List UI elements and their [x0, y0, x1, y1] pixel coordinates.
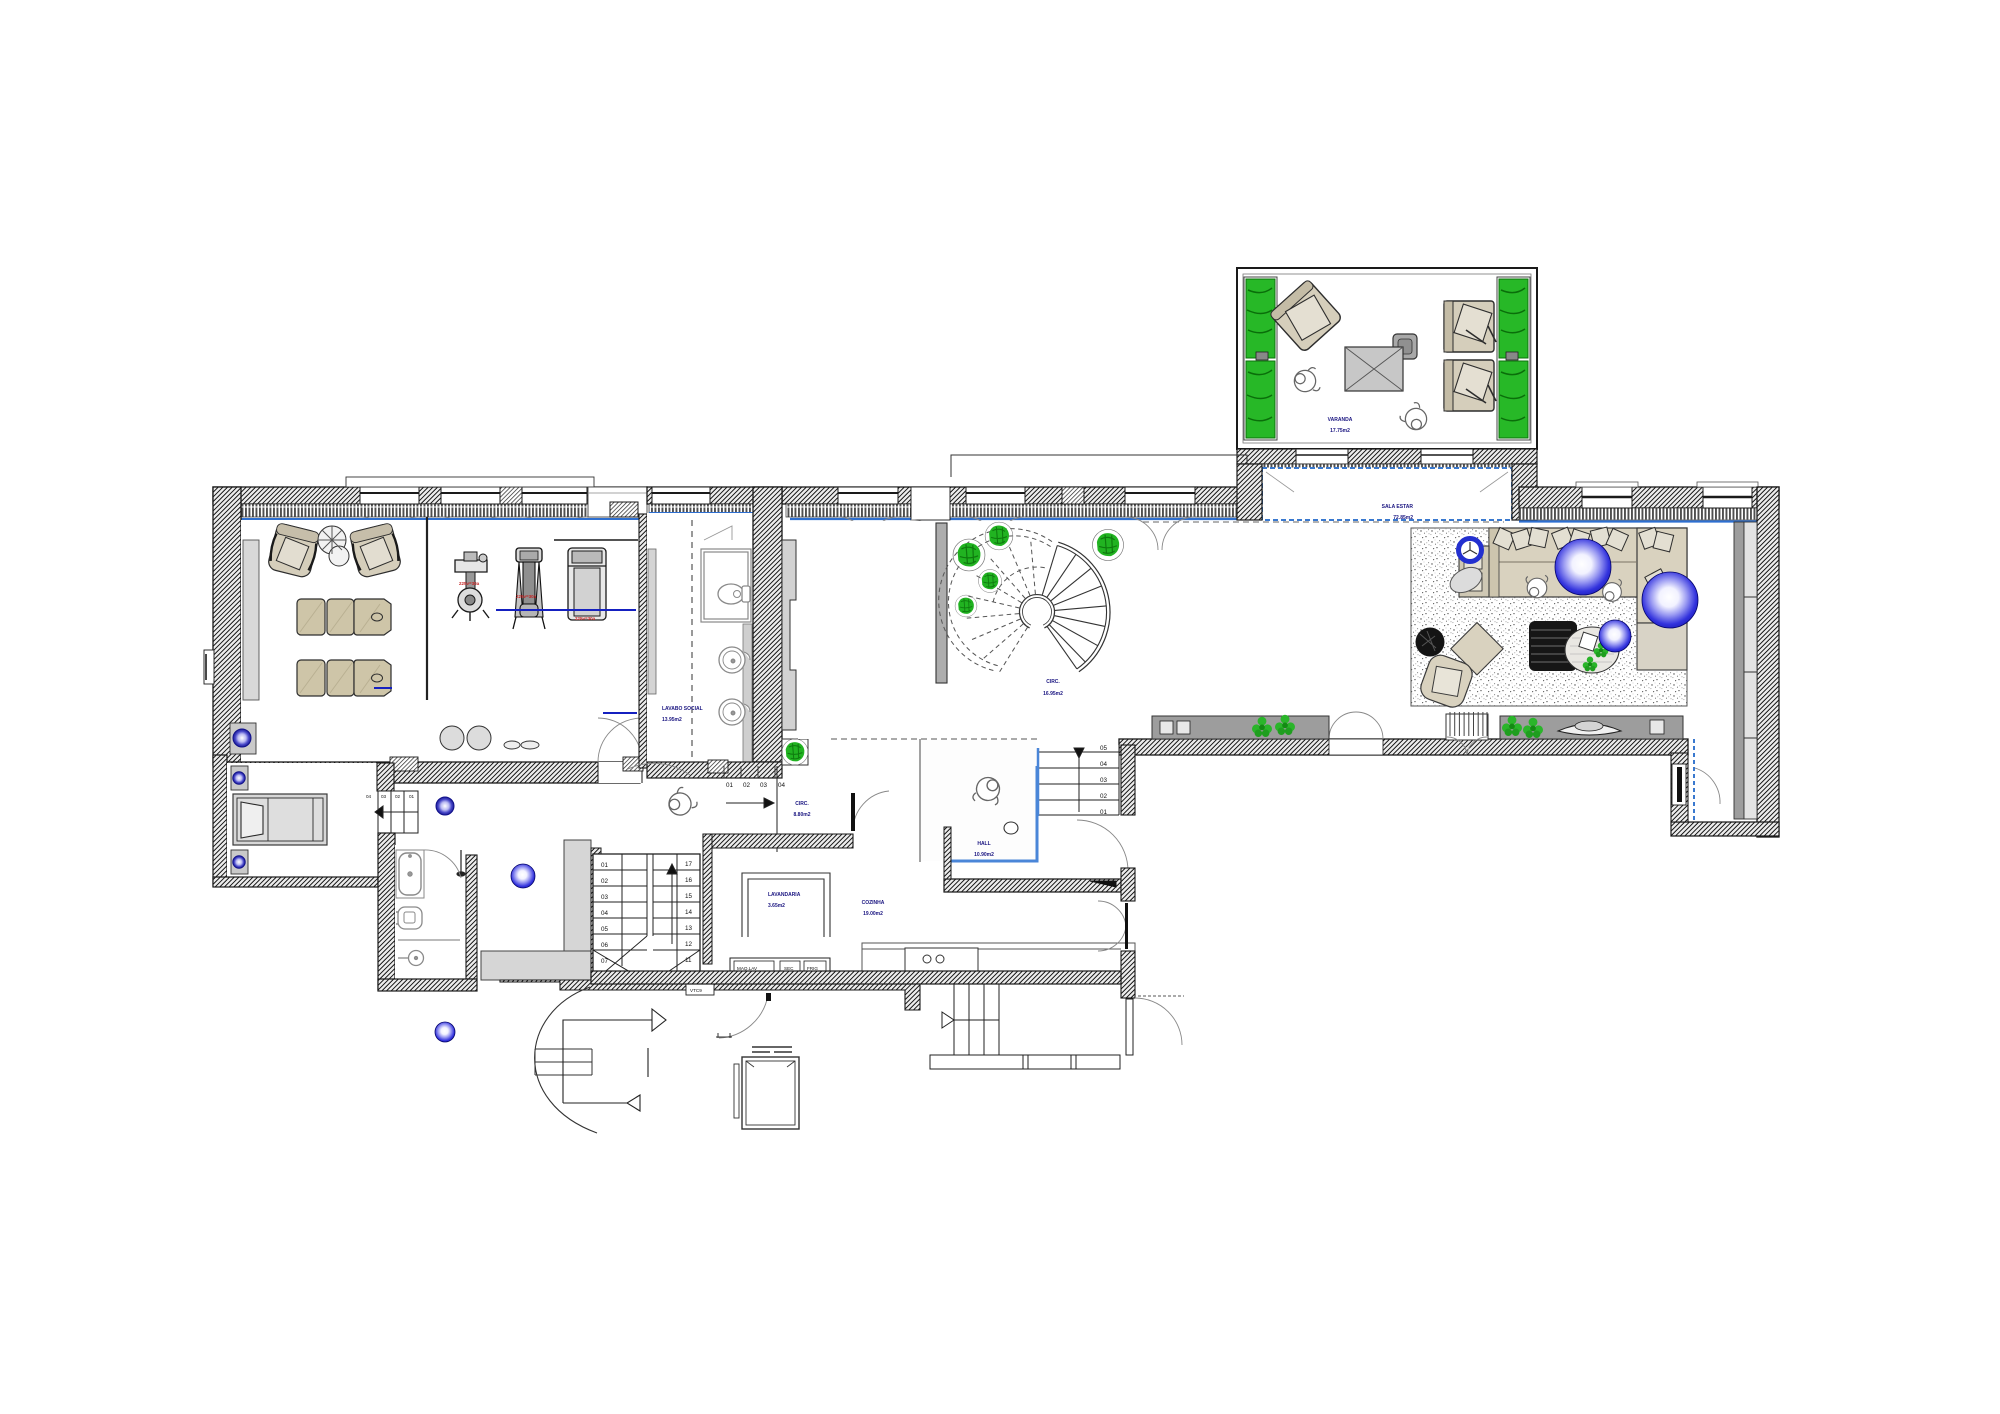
svg-text:05: 05 — [601, 926, 609, 933]
svg-text:CIRC.: CIRC. — [795, 801, 809, 807]
svg-text:16: 16 — [685, 877, 693, 884]
svg-text:11: 11 — [685, 957, 692, 964]
svg-text:SALA ESTAR: SALA ESTAR — [1382, 504, 1414, 510]
svg-text:01: 01 — [726, 782, 734, 789]
svg-text:VTC9: VTC9 — [690, 988, 702, 993]
svg-text:13.95m2: 13.95m2 — [662, 717, 682, 723]
svg-text:02: 02 — [601, 878, 609, 885]
svg-text:01: 01 — [1100, 809, 1108, 816]
svg-text:17: 17 — [685, 861, 693, 868]
svg-text:14: 14 — [685, 909, 693, 916]
svg-text:17.75m2: 17.75m2 — [1330, 428, 1350, 434]
svg-text:07: 07 — [601, 958, 609, 965]
svg-text:MAQ.LAV: MAQ.LAV — [737, 966, 758, 971]
svg-text:LAVABO SOCIAL: LAVABO SOCIAL — [662, 706, 703, 712]
svg-text:04: 04 — [1100, 761, 1108, 768]
svg-text:CIRC.: CIRC. — [1046, 679, 1060, 685]
svg-text:3.65m2: 3.65m2 — [768, 903, 785, 909]
svg-text:15: 15 — [685, 893, 693, 900]
svg-text:01: 01 — [409, 794, 415, 799]
svg-text:SEC: SEC — [784, 966, 794, 971]
svg-text:04: 04 — [366, 794, 372, 799]
svg-text:COZINHA: COZINHA — [862, 900, 885, 906]
svg-text:225v=30a: 225v=30a — [575, 616, 596, 621]
svg-text:02: 02 — [743, 782, 751, 789]
svg-text:LAVANDARIA: LAVANDARIA — [768, 892, 801, 898]
svg-text:02: 02 — [395, 794, 401, 799]
svg-text:03: 03 — [760, 782, 768, 789]
svg-text:19.00m2: 19.00m2 — [863, 911, 883, 917]
svg-text:04: 04 — [601, 910, 609, 917]
svg-text:225v=30a: 225v=30a — [516, 594, 537, 599]
svg-text:01: 01 — [601, 862, 609, 869]
svg-text:10.90m2: 10.90m2 — [974, 852, 994, 858]
svg-text:06: 06 — [601, 942, 609, 949]
svg-text:13: 13 — [685, 925, 693, 932]
svg-text:FRIG: FRIG — [807, 966, 818, 971]
svg-text:02: 02 — [1100, 793, 1108, 800]
svg-text:05: 05 — [1100, 745, 1108, 752]
svg-text:12: 12 — [685, 941, 693, 948]
svg-text:225v=30a: 225v=30a — [459, 581, 480, 586]
svg-text:16.95m2: 16.95m2 — [1043, 691, 1063, 697]
svg-text:HALL: HALL — [977, 841, 990, 847]
svg-text:72.85m2: 72.85m2 — [1393, 515, 1413, 521]
svg-text:04: 04 — [778, 782, 786, 789]
svg-text:03: 03 — [1100, 777, 1108, 784]
svg-text:VARANDA: VARANDA — [1328, 417, 1353, 423]
svg-text:03: 03 — [381, 794, 387, 799]
svg-text:8.80m2: 8.80m2 — [794, 812, 811, 818]
svg-text:03: 03 — [601, 894, 609, 901]
